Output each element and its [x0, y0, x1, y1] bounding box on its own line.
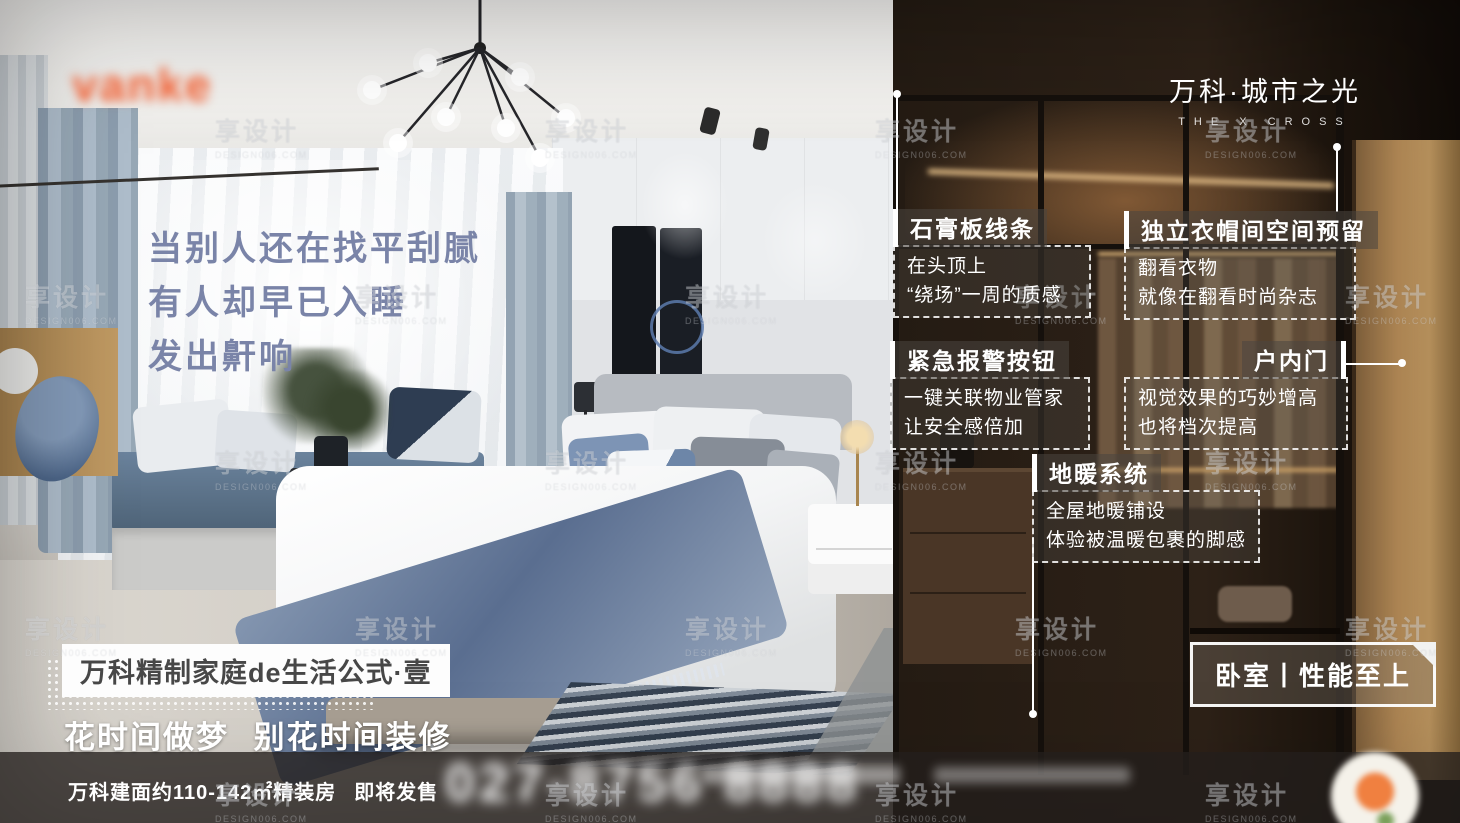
callout-cloakroom: 独立衣帽间空间预留 翻看衣物 就像在翻看时尚杂志	[1124, 211, 1378, 320]
callout-anchor-dot	[893, 90, 901, 98]
tagline: 花时间做梦 别花时间装修	[64, 712, 452, 757]
callout-anchor-dot	[1398, 359, 1406, 367]
callout-desc: 视觉效果的巧妙增高 也将档次提高	[1124, 377, 1348, 450]
callout-desc: 翻看衣物 就像在翻看时尚杂志	[1124, 247, 1356, 320]
callout-door: 户内门 视觉效果的巧妙增高 也将档次提高	[1124, 341, 1346, 450]
callout-desc: 一键关联物业管家 让安全感倍加	[890, 377, 1090, 450]
blurred-text	[934, 767, 1130, 783]
callout-desc: 全屋地暖铺设 体验被温暖包裹的脚感	[1032, 490, 1260, 563]
callout-gypsum: 石膏板线条 在头顶上 “绕场”一周的质感	[893, 209, 1091, 318]
callout-desc-line: “绕场”一周的质感	[907, 282, 1077, 311]
callout-desc-line: 全屋地暖铺设	[1046, 498, 1246, 527]
poster: vanke 万科·城市之光 THE X CROSS 当别人还在找平刮腻 有人却早…	[0, 0, 1460, 823]
callout-anchor-dot	[1029, 710, 1037, 718]
headline-line: 有人却早已入睡	[148, 276, 481, 330]
blurred-text	[702, 766, 900, 784]
callout-title: 独立衣帽间空间预留	[1124, 211, 1378, 249]
brand-lockup: 万科·城市之光 THE X CROSS	[1130, 70, 1400, 128]
footer-info: 万科建面约110-142㎡精装房即将发售	[68, 776, 438, 805]
footer-area: 万科建面约110-142㎡精装房	[68, 782, 336, 804]
brand-subtitle: THE X CROSS	[1130, 116, 1400, 128]
callout-title: 地暖系统	[1032, 454, 1161, 492]
callout-desc-line: 一键关联物业管家	[904, 385, 1076, 414]
callout-desc-line: 在头顶上	[907, 253, 1077, 282]
callout-desc-line: 体验被温暖包裹的脚感	[1046, 527, 1246, 556]
vanke-logo: vanke	[72, 58, 212, 112]
callout-desc: 在头顶上 “绕场”一周的质感	[893, 245, 1091, 318]
callout-floor-heating: 地暖系统 全屋地暖铺设 体验被温暖包裹的脚感	[1032, 454, 1260, 563]
room-badge-label: 卧室丨性能至上	[1215, 661, 1411, 691]
headline-line: 当别人还在找平刮腻	[148, 222, 481, 276]
callout-connector	[1345, 363, 1401, 365]
headline-line: 发出鼾响	[148, 330, 481, 384]
callout-desc-line: 就像在翻看时尚杂志	[1138, 284, 1342, 313]
callout-title: 紧急报警按钮	[890, 341, 1069, 379]
callout-title: 户内门	[1242, 341, 1346, 379]
formula-box: 万科精制家庭de生活公式·壹	[62, 644, 450, 697]
callout-title: 石膏板线条	[893, 209, 1047, 247]
page-fold-icon	[1410, 642, 1436, 668]
callout-desc-line: 让安全感倍加	[904, 414, 1076, 443]
callout-connector	[1032, 537, 1034, 713]
callout-alarm: 紧急报警按钮 一键关联物业管家 让安全感倍加	[890, 341, 1090, 450]
headline: 当别人还在找平刮腻 有人却早已入睡 发出鼾响	[148, 222, 481, 384]
room-badge: 卧室丨性能至上	[1190, 642, 1436, 707]
callout-desc-line: 视觉效果的巧妙增高	[1138, 385, 1334, 414]
footer-status: 即将发售	[354, 782, 438, 804]
callout-connector	[1336, 150, 1338, 212]
callout-desc-line: 翻看衣物	[1138, 255, 1342, 284]
brand-name: 万科·城市之光	[1130, 70, 1400, 109]
callout-connector	[896, 95, 898, 213]
callout-desc-line: 也将档次提高	[1138, 414, 1334, 443]
